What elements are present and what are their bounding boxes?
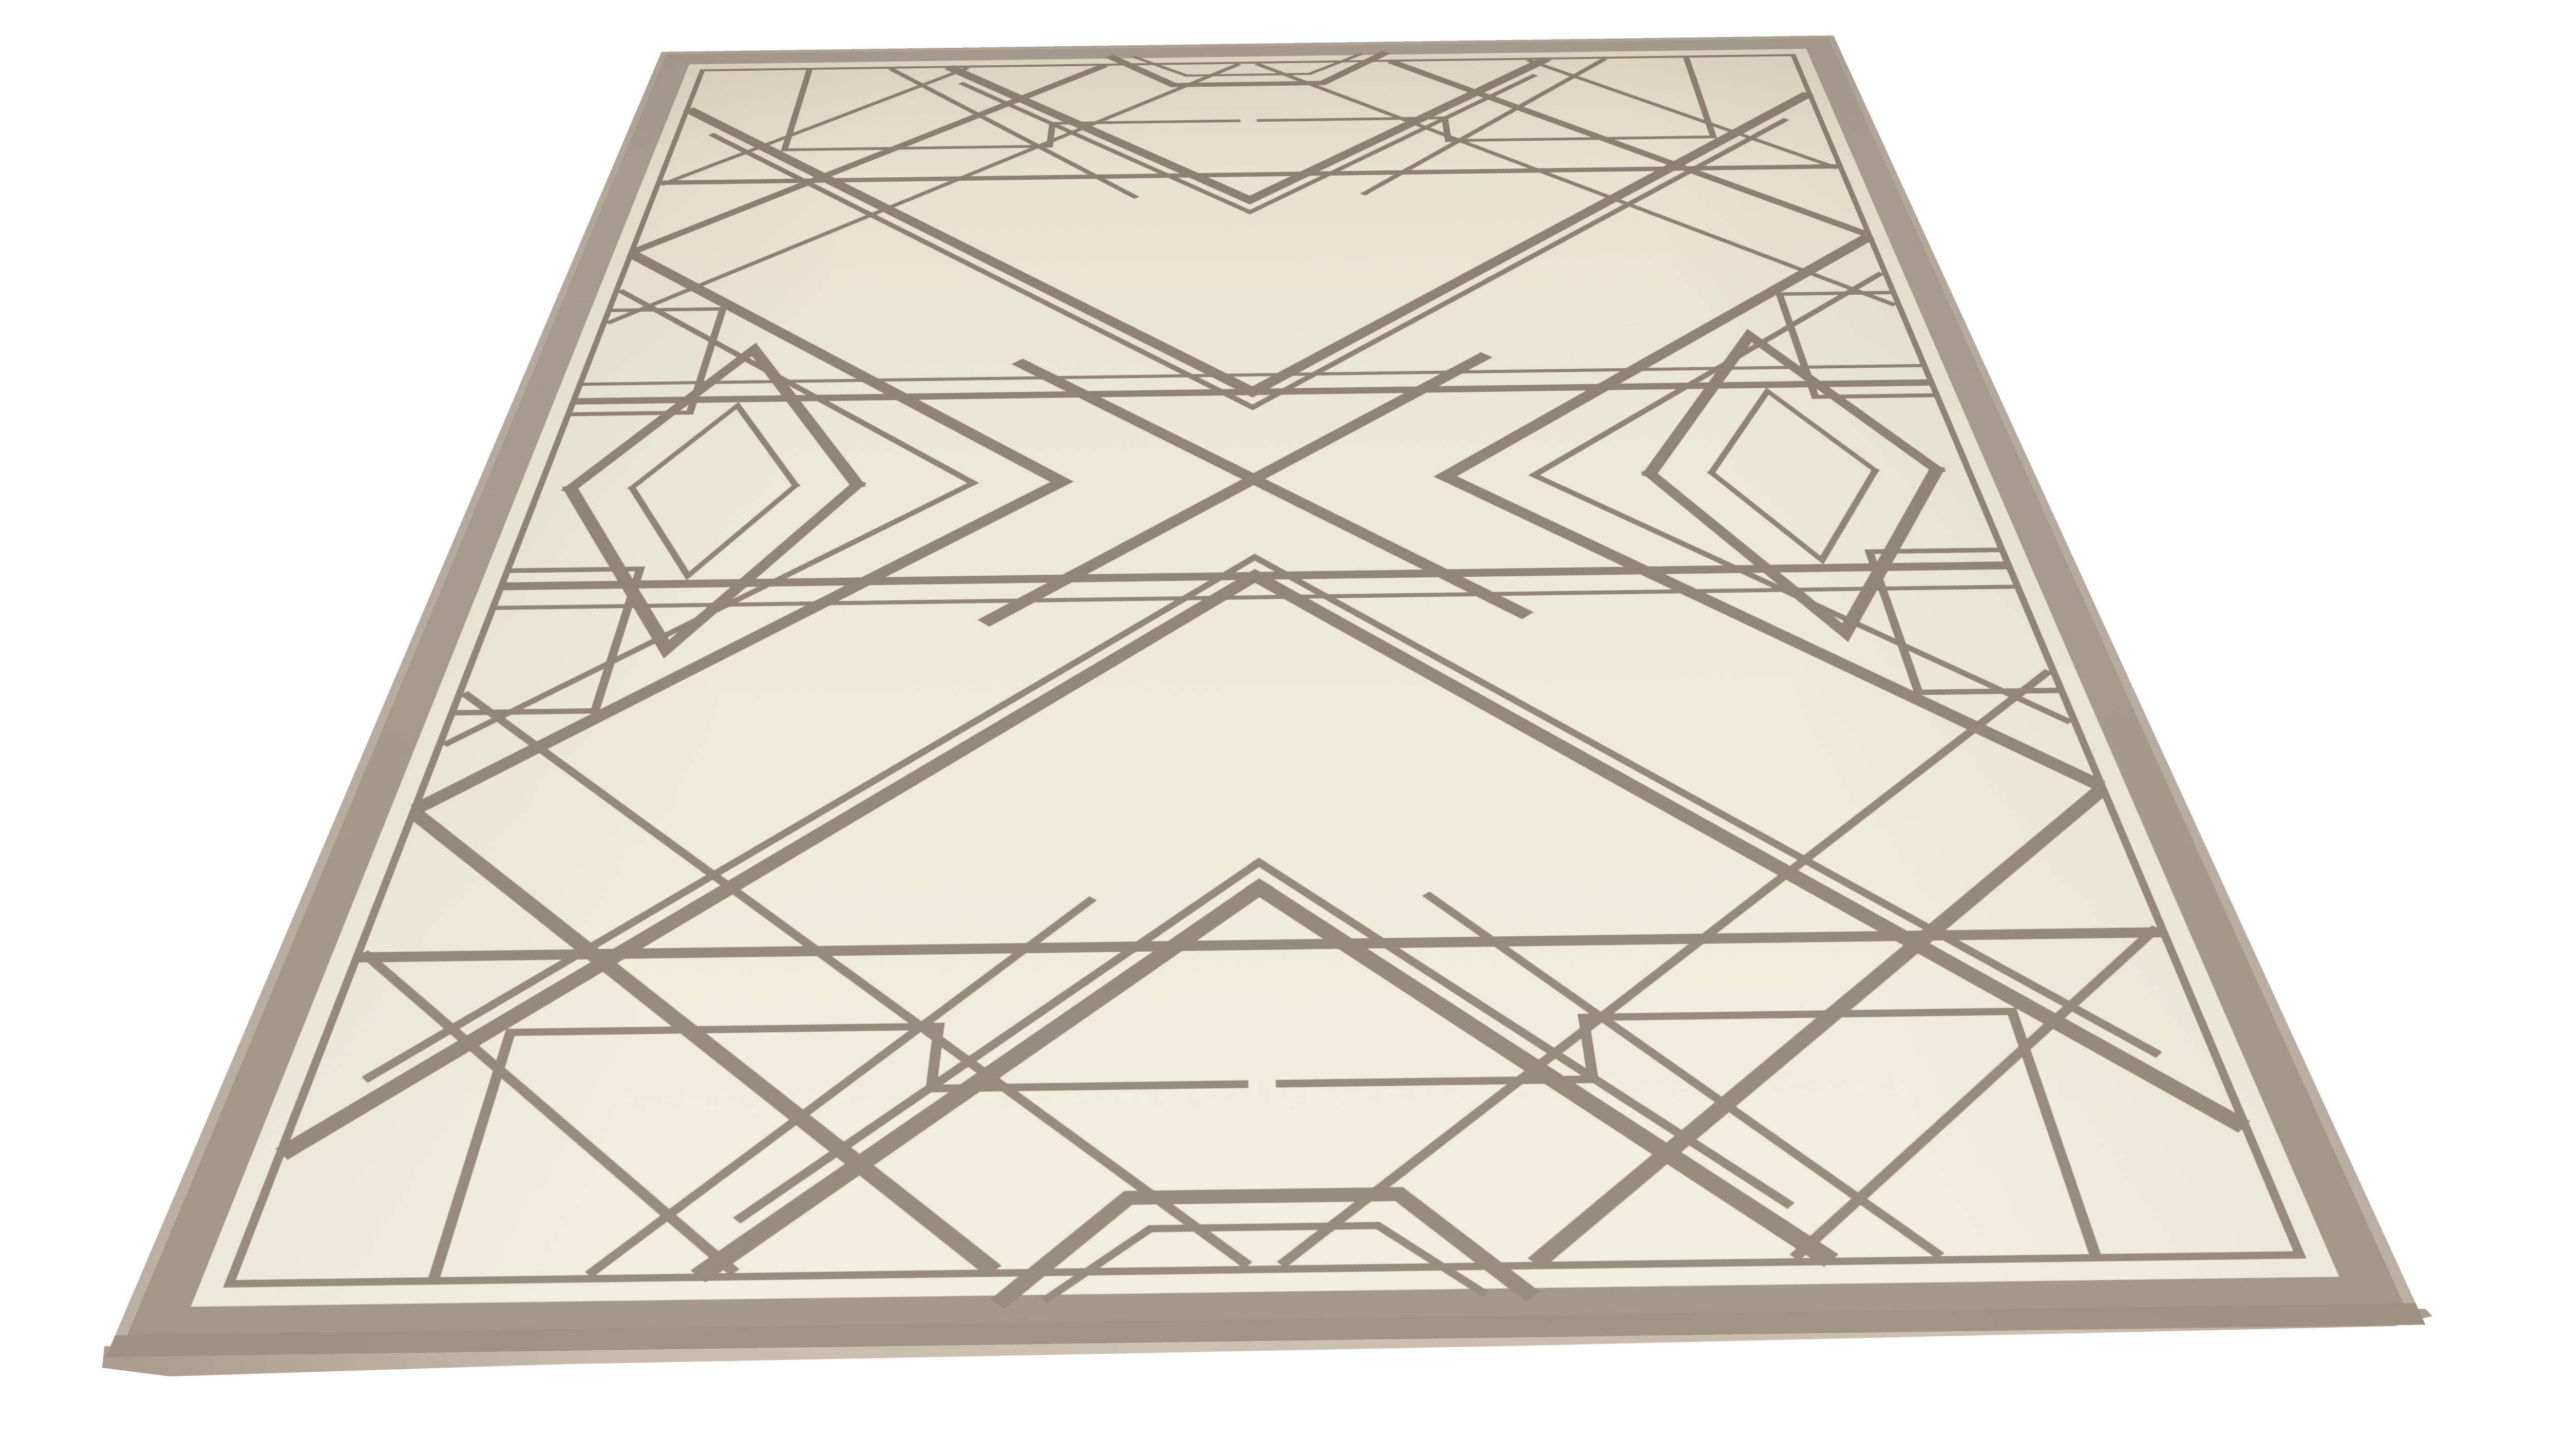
rug-plane	[106, 35, 2425, 1357]
rug-field	[191, 49, 2339, 1307]
rug-pattern	[106, 35, 2425, 1357]
rug	[106, 35, 2425, 1357]
photo-background	[0, 0, 2567, 1456]
